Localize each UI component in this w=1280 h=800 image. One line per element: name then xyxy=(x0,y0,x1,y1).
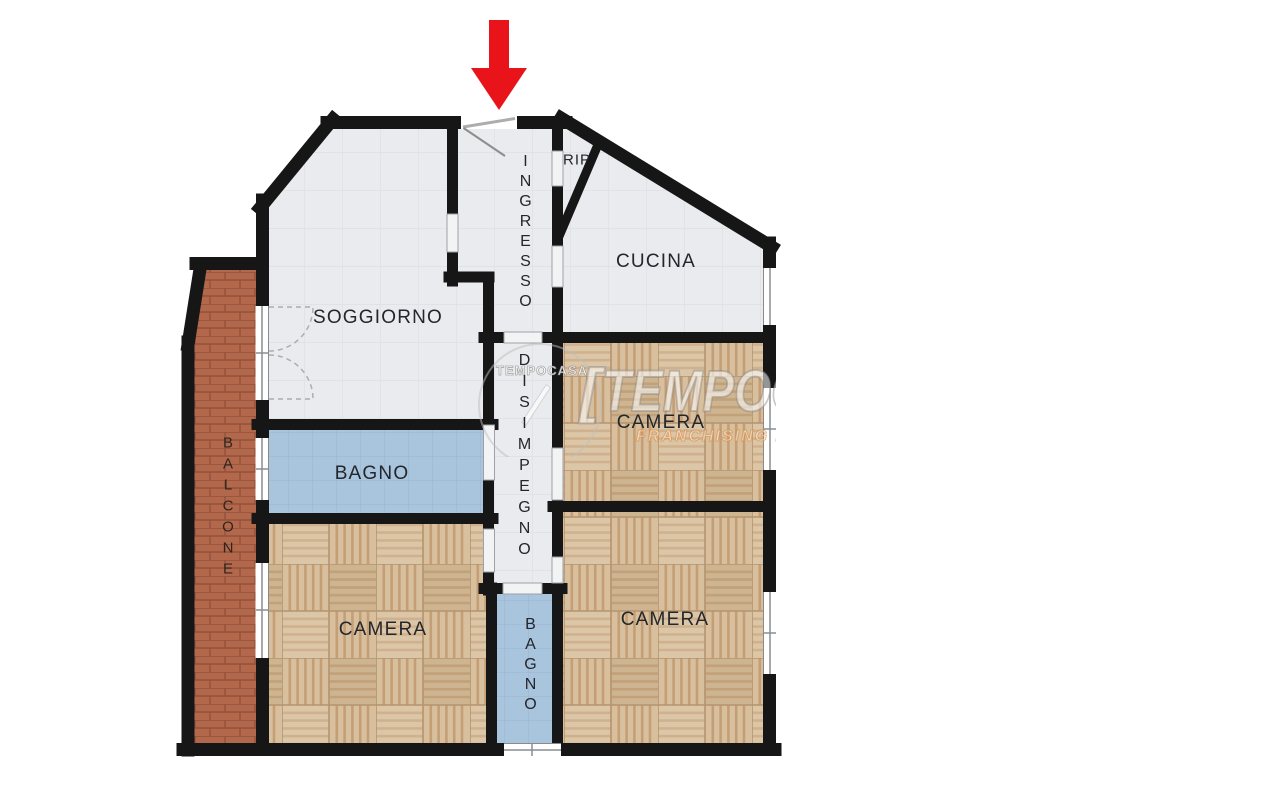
floor-plan-drawing xyxy=(0,0,1280,800)
disimpegno-label: DISIMPEGNO xyxy=(516,352,532,562)
camera-nord-door xyxy=(552,448,563,500)
cucina-door xyxy=(552,246,563,287)
ingresso-label: INGRESSO xyxy=(517,153,533,313)
camera-sud-label: CAMERA xyxy=(621,609,710,631)
bagno-giorno-label: BAGNO xyxy=(335,463,410,485)
balcone-label: BALCONE xyxy=(221,435,236,582)
rip-label: RIP xyxy=(563,152,591,169)
camera-nord-label: CAMERA xyxy=(617,412,706,434)
soggiorno-door xyxy=(447,214,458,252)
soggiorno-label: SOGGIORNO xyxy=(313,307,443,329)
bagno-giorno-door xyxy=(484,425,495,480)
camera-ovest-door xyxy=(484,529,495,572)
entrance-arrow-icon xyxy=(471,20,527,110)
camera-ovest-label: CAMERA xyxy=(339,619,428,641)
camera-sud-door xyxy=(552,557,563,583)
bagno-notte-label: BAGNO xyxy=(522,616,538,716)
rip-door xyxy=(552,151,563,186)
ingresso-disimpegno-door xyxy=(504,332,542,343)
cucina-label: CUCINA xyxy=(616,251,696,273)
bagno-notte-door xyxy=(503,583,542,594)
floor-plan-page: TEMPOCASA [ TEMPOCASA FRANCHISING NETWOR… xyxy=(0,0,1280,800)
